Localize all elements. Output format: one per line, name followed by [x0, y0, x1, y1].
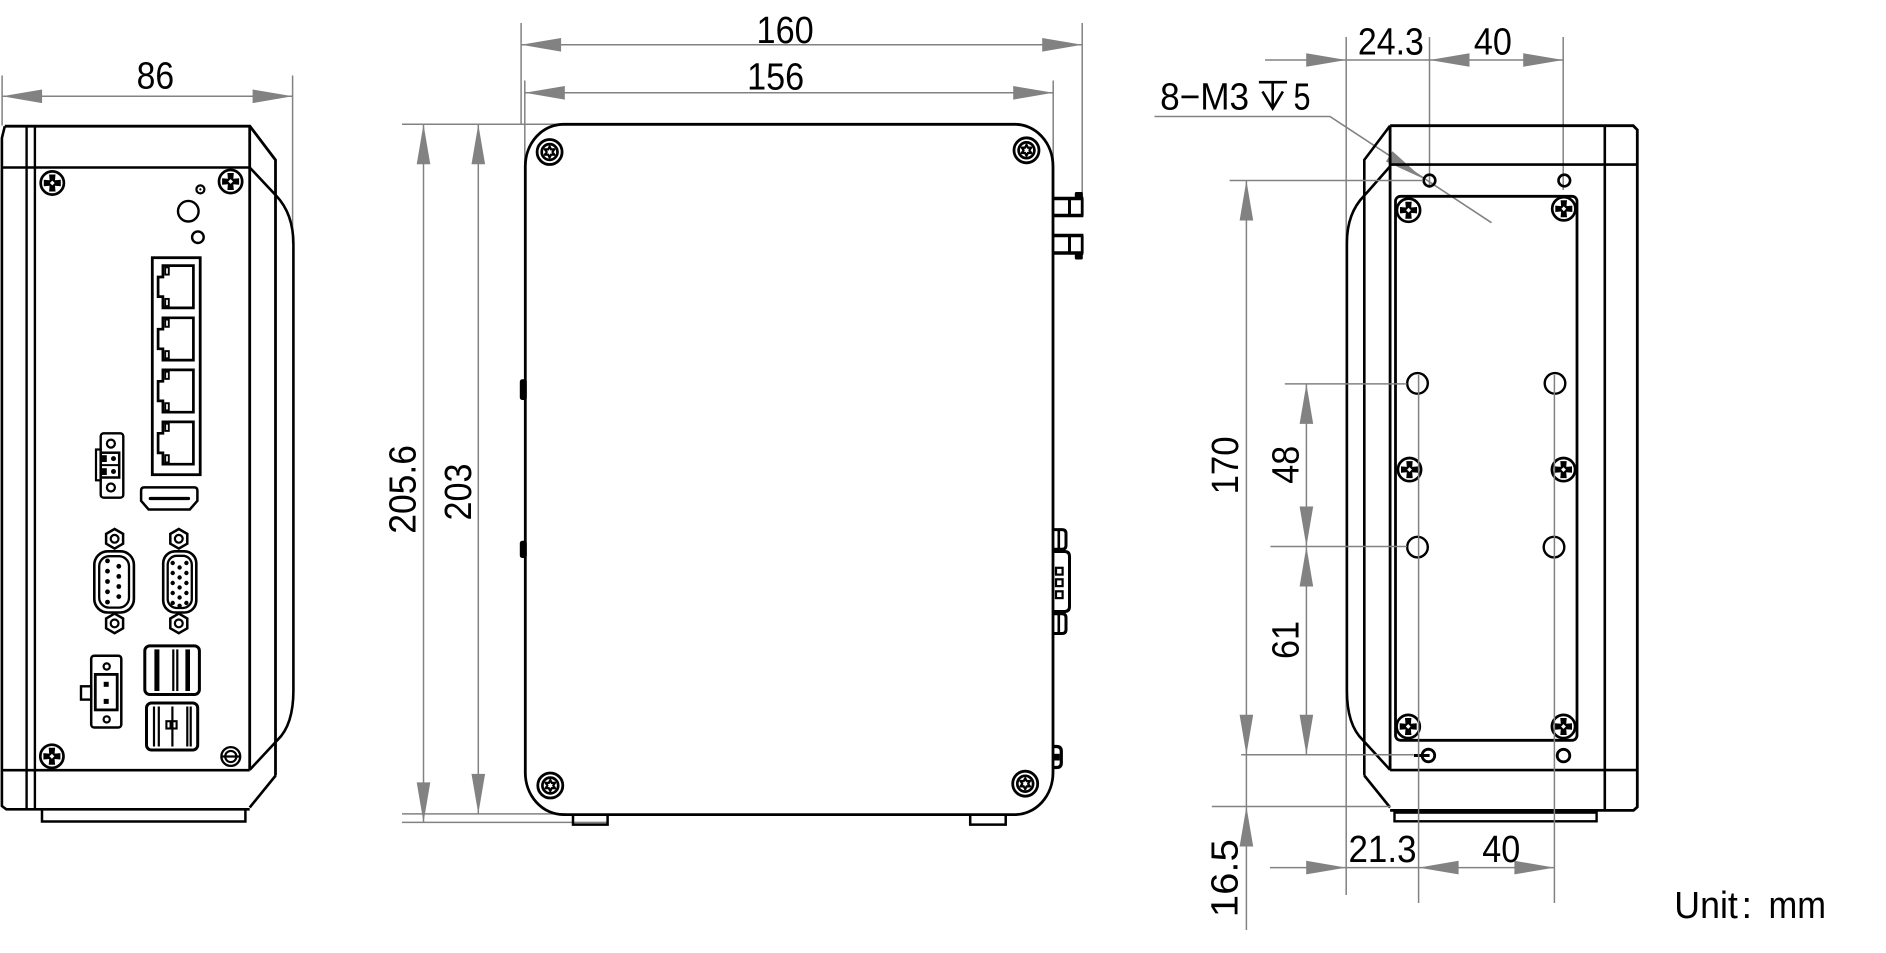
svg-text:156: 156	[747, 57, 804, 99]
svg-text:61: 61	[1266, 621, 1308, 659]
svg-text:160: 160	[757, 10, 814, 52]
svg-text:40: 40	[1482, 829, 1520, 871]
svg-text:24.3: 24.3	[1358, 22, 1424, 64]
svg-text::: :	[1742, 885, 1753, 927]
svg-text:48: 48	[1266, 446, 1308, 484]
svg-text:5: 5	[1294, 77, 1311, 119]
svg-text:205.6: 205.6	[383, 445, 425, 534]
svg-text:21.3: 21.3	[1349, 829, 1417, 871]
svg-text:8−M3: 8−M3	[1160, 77, 1249, 119]
svg-text:mm: mm	[1769, 885, 1827, 927]
svg-text:40: 40	[1474, 22, 1512, 64]
svg-text:203: 203	[438, 464, 480, 521]
svg-text:16.5: 16.5	[1205, 839, 1247, 917]
svg-text:Unit: Unit	[1674, 885, 1738, 927]
svg-text:170: 170	[1205, 436, 1247, 494]
svg-text:86: 86	[137, 56, 175, 98]
